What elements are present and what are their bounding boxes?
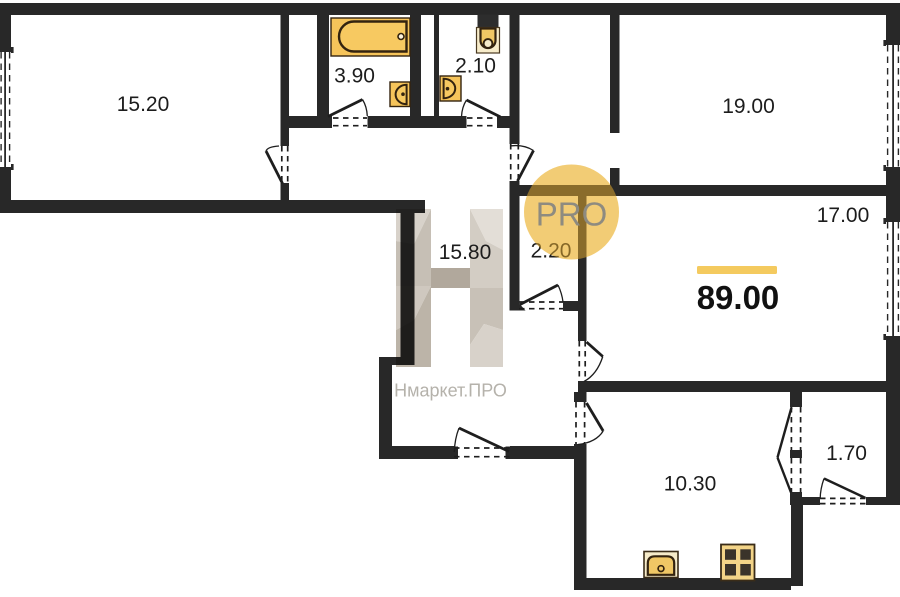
- svg-text:89.00: 89.00: [697, 279, 780, 316]
- svg-text:1.70: 1.70: [826, 442, 867, 465]
- svg-text:3.90: 3.90: [334, 65, 375, 88]
- svg-text:PRO: PRO: [536, 196, 608, 233]
- svg-text:17.00: 17.00: [817, 204, 870, 227]
- svg-text:19.00: 19.00: [722, 95, 775, 118]
- svg-text:2.10: 2.10: [455, 55, 496, 78]
- svg-text:15.80: 15.80: [439, 241, 492, 264]
- svg-text:Нмаркет.ПРО: Нмаркет.ПРО: [394, 381, 507, 401]
- svg-text:15.20: 15.20: [117, 93, 170, 116]
- svg-text:10.30: 10.30: [664, 473, 717, 496]
